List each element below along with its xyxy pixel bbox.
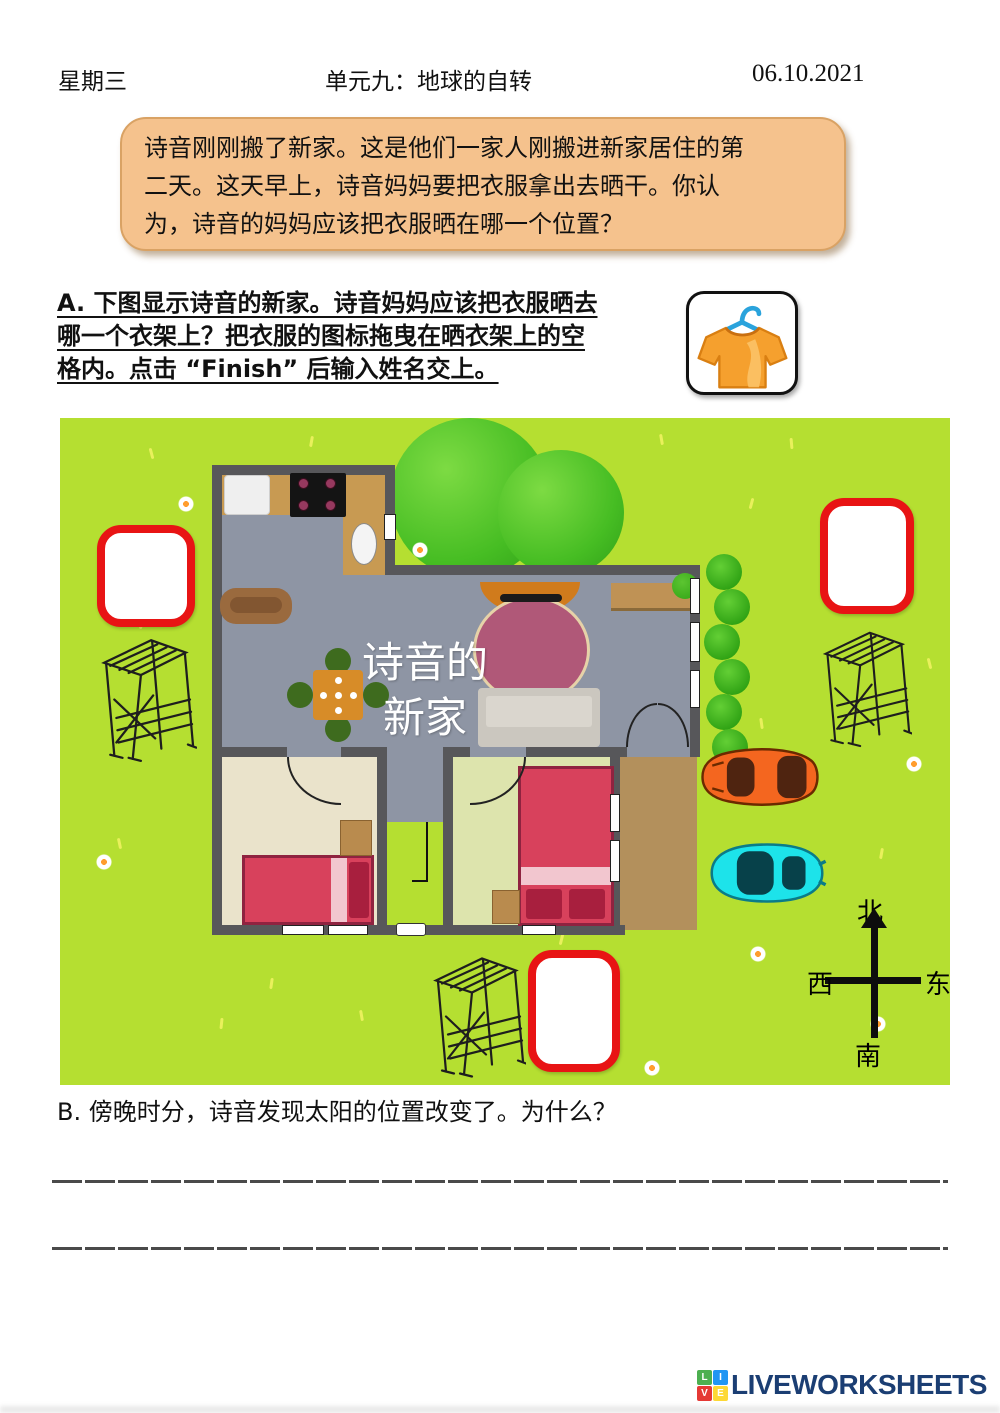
patio-wall: [443, 747, 453, 935]
grass-tuft: [149, 448, 155, 459]
house-label: 诗音的 新家: [345, 636, 505, 745]
section-a-line-2: 哪一个衣架上？把衣服的图标拖曳在晒衣架上的空: [57, 320, 697, 353]
grass-tuft: [749, 498, 755, 509]
window: [610, 840, 620, 882]
liveworksheets-logo: L I V E LIVEWORKSHEETS: [697, 1369, 987, 1401]
bush-icon: [714, 589, 750, 625]
logo-tile-i: I: [713, 1370, 728, 1385]
dropzone-east-rack[interactable]: [820, 498, 914, 614]
house-wall: [385, 565, 700, 575]
section-a-line-3: 格内。点击 “Finish” 后输入姓名交上。: [57, 353, 697, 386]
sink-icon: [351, 523, 377, 565]
flower-icon: [906, 756, 922, 772]
header-date: 06.10.2021: [752, 60, 865, 88]
tshirt-on-hanger-icon: [689, 294, 795, 392]
porch-floor: [620, 757, 697, 930]
window: [690, 622, 700, 662]
flower-icon: [644, 1060, 660, 1076]
single-bed-icon: [242, 855, 374, 925]
grass-tuft: [309, 436, 314, 447]
worksheet-page: 星期三 单元九：地球的自转 06.10.2021 诗音刚刚搬了新家。这是他们一家…: [0, 0, 1000, 1413]
house-map-illustration: 诗音的 新家: [60, 418, 950, 1085]
header-day: 星期三: [58, 62, 127, 96]
next-page-edge-artifact: [0, 1406, 1000, 1413]
table-plates: [335, 692, 342, 699]
house-label-line-2: 新家: [345, 691, 505, 746]
section-b-question: B. 傍晚时分，诗音发现太阳的位置改变了。为什么？: [57, 1092, 617, 1127]
patio-gate: [396, 923, 426, 936]
compass-west-label: 西: [807, 964, 833, 1001]
house-wall: [212, 747, 287, 757]
liveworksheets-logo-icon: L I V E: [697, 1370, 728, 1401]
grass-tuft: [559, 934, 565, 945]
house-wall: [341, 747, 379, 757]
grass-tuft: [927, 658, 933, 669]
stove-burner: [325, 478, 336, 489]
clothes-drying-rack-icon: [816, 618, 912, 754]
bush-icon: [714, 659, 750, 695]
nightstand-icon: [340, 820, 372, 856]
compass-cross-icon: 北 西 东 南: [805, 886, 945, 1071]
house-wall: [212, 465, 222, 935]
intro-line-2: 二天。这天早上，诗音妈妈要把衣服拿出去晒干。你认: [144, 167, 822, 205]
clothes-drying-rack-icon: [93, 628, 197, 766]
window: [328, 925, 368, 935]
stove-burner: [298, 500, 309, 511]
bed-pillow: [349, 862, 369, 918]
logo-tile-l: L: [697, 1370, 712, 1385]
flower-icon: [96, 854, 112, 870]
double-bed-icon: [518, 766, 614, 926]
house-wall: [526, 747, 627, 757]
bed-pillow: [526, 889, 562, 919]
dining-chair-icon: [287, 682, 313, 708]
flower-icon: [750, 946, 766, 962]
tshirt-drag-source[interactable]: [686, 291, 798, 395]
grass-tuft: [659, 434, 664, 445]
grass-tuft: [359, 1010, 364, 1021]
grass-tuft: [219, 1018, 223, 1029]
nightstand-icon: [492, 890, 520, 924]
grass-tuft: [269, 978, 274, 989]
house-wall: [451, 747, 470, 757]
section-a-instructions: A. 下图显示诗音的新家。诗音妈妈应该把衣服晒去 哪一个衣架上？把衣服的图标拖曳…: [57, 287, 697, 386]
compass-east-label: 东: [925, 964, 950, 1001]
grass-tuft: [879, 848, 884, 859]
header-unit-title: 单元九：地球的自转: [325, 62, 532, 96]
stove-burner: [298, 478, 309, 489]
window: [690, 578, 700, 614]
grass-tuft: [759, 718, 764, 729]
tree-icon: [498, 450, 624, 576]
intro-line-1: 诗音刚刚搬了新家。这是他们一家人刚搬进新家居住的第: [144, 129, 822, 167]
section-a-line-1: A. 下图显示诗音的新家。诗音妈妈应该把衣服晒去: [57, 287, 697, 320]
grass-tuft: [790, 438, 794, 449]
grass-tuft: [117, 838, 122, 849]
intro-bubble: 诗音刚刚搬了新家。这是他们一家人刚搬进新家居住的第 二天。这天早上，诗音妈妈要把…: [120, 117, 846, 251]
brown-sofa-icon: [220, 588, 292, 624]
stove-burner: [325, 500, 336, 511]
intro-line-3: 为，诗音的妈妈应该把衣服晒在哪一个位置？: [144, 205, 822, 243]
bed-pillow: [569, 889, 605, 919]
answer-line-1[interactable]: [52, 1180, 948, 1183]
tv-icon: [500, 594, 562, 602]
bush-icon: [704, 624, 740, 660]
bush-icon: [706, 554, 742, 590]
patio-gate-line: [412, 822, 428, 882]
dropzone-west-rack[interactable]: [97, 525, 195, 627]
fridge-icon: [224, 475, 270, 515]
compass-arrowhead: [861, 908, 887, 928]
bush-icon: [706, 694, 742, 730]
orange-car-icon: [696, 734, 826, 820]
answer-line-2[interactable]: [52, 1247, 948, 1250]
window: [522, 925, 556, 935]
window: [690, 670, 700, 708]
clothes-drying-rack-icon: [426, 946, 526, 1082]
window: [610, 794, 620, 832]
flower-icon: [178, 496, 194, 512]
logo-tile-v: V: [697, 1386, 712, 1401]
house-label-line-1: 诗音的: [345, 636, 505, 691]
dropzone-south-rack[interactable]: [528, 950, 620, 1072]
logo-brand-text: LIVEWORKSHEETS: [731, 1369, 987, 1401]
compass-horizontal-bar: [825, 977, 921, 984]
bed-sheet: [331, 858, 347, 922]
kitchen-door: [384, 514, 396, 540]
window: [282, 925, 324, 935]
flower-icon: [412, 542, 428, 558]
patio-wall: [377, 747, 387, 935]
hallway-floor: [387, 757, 443, 822]
compass-south-label: 南: [855, 1036, 881, 1073]
bed-sheet: [521, 867, 611, 885]
logo-tile-e: E: [713, 1386, 728, 1401]
